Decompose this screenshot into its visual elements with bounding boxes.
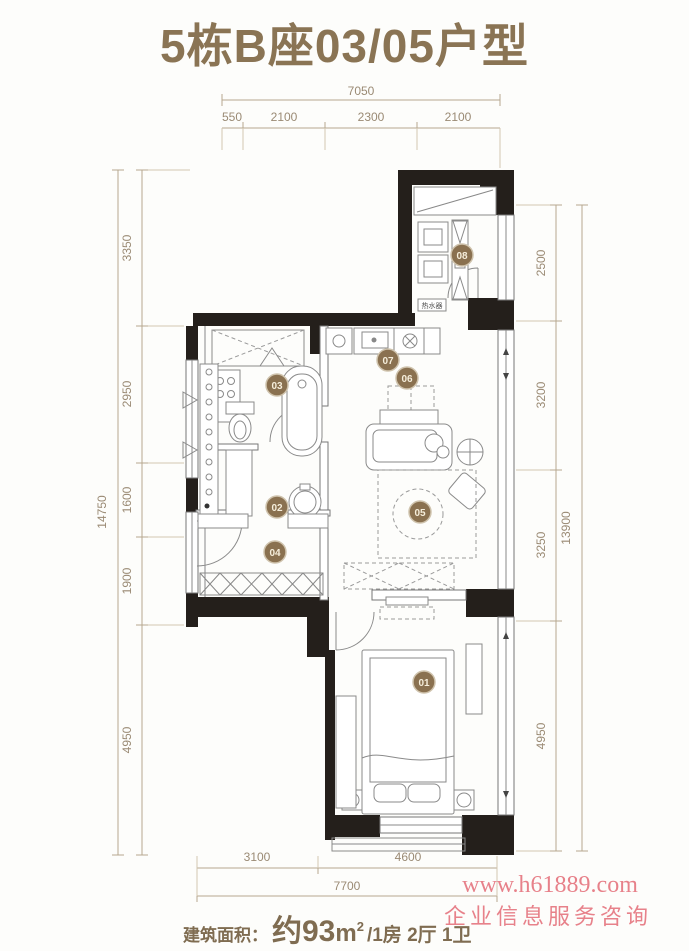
dimension-chain-right: 13900 2500 3200 3250 4950 bbox=[516, 205, 588, 851]
room-badge-02: 02 bbox=[266, 496, 288, 518]
room-badge-08: 08 bbox=[451, 244, 473, 266]
kitchen-counter: 热水器 bbox=[326, 299, 446, 354]
room-badge-01: 01 bbox=[413, 671, 435, 693]
svg-text:3100: 3100 bbox=[244, 850, 271, 864]
svg-text:2950: 2950 bbox=[120, 380, 134, 407]
room-badge-03: 03 bbox=[266, 374, 288, 396]
svg-text:2500: 2500 bbox=[534, 249, 548, 276]
svg-text:550: 550 bbox=[222, 110, 242, 124]
bedroom-furniture bbox=[336, 563, 482, 814]
entry-furniture bbox=[198, 514, 328, 595]
svg-text:07: 07 bbox=[382, 356, 394, 367]
area-unit: m bbox=[335, 920, 356, 948]
svg-text:06: 06 bbox=[401, 374, 413, 385]
svg-text:4950: 4950 bbox=[120, 726, 134, 753]
svg-text:2100: 2100 bbox=[271, 110, 298, 124]
svg-text:7050: 7050 bbox=[348, 84, 375, 98]
svg-text:4600: 4600 bbox=[395, 850, 422, 864]
svg-text:3350: 3350 bbox=[120, 234, 134, 261]
floorplan-page: 5栋B座03/05户型 7050 550 2100 2300 2100 1475… bbox=[0, 0, 689, 951]
area-summary: 建筑面积： 约93 m 2 /1房 2厅 1卫 bbox=[183, 906, 472, 950]
svg-text:4950: 4950 bbox=[534, 722, 548, 749]
area-exponent: 2 bbox=[357, 919, 364, 934]
water-heater-label: 热水器 bbox=[418, 299, 446, 311]
room-badge-07: 07 bbox=[377, 349, 399, 371]
svg-text:热水器: 热水器 bbox=[422, 301, 443, 310]
svg-text:13900: 13900 bbox=[559, 511, 573, 545]
watermark-url: www.h61889.com bbox=[450, 872, 650, 899]
area-label: 建筑面积： bbox=[183, 921, 268, 946]
svg-text:1600: 1600 bbox=[120, 486, 134, 513]
svg-text:04: 04 bbox=[269, 548, 281, 559]
watermark-caption: 企业信息服务咨询 bbox=[434, 899, 662, 931]
svg-text:05: 05 bbox=[414, 508, 426, 519]
room-badge-05: 05 bbox=[409, 501, 431, 523]
svg-text:2100: 2100 bbox=[445, 110, 472, 124]
svg-text:03: 03 bbox=[271, 381, 283, 392]
svg-text:3200: 3200 bbox=[534, 381, 548, 408]
dimension-chain-left: 14750 3350 2950 1600 1900 4950 bbox=[95, 170, 190, 855]
svg-text:02: 02 bbox=[271, 503, 283, 514]
area-value: 约93 bbox=[272, 906, 335, 950]
living-furniture bbox=[366, 410, 487, 558]
svg-text:3250: 3250 bbox=[534, 531, 548, 558]
svg-text:2300: 2300 bbox=[358, 110, 385, 124]
svg-text:1900: 1900 bbox=[120, 567, 134, 594]
dimension-chain-top: 7050 550 2100 2300 2100 bbox=[222, 84, 500, 168]
svg-text:7700: 7700 bbox=[334, 879, 361, 893]
svg-text:14750: 14750 bbox=[95, 495, 109, 529]
svg-text:01: 01 bbox=[418, 678, 430, 689]
svg-text:08: 08 bbox=[456, 251, 468, 262]
room-badge-04: 04 bbox=[264, 541, 286, 563]
floor-plan-svg: 7050 550 2100 2300 2100 14750 3350 2950 … bbox=[0, 0, 689, 951]
utility-room-furniture bbox=[414, 187, 496, 300]
room-badge-06: 06 bbox=[396, 367, 418, 389]
